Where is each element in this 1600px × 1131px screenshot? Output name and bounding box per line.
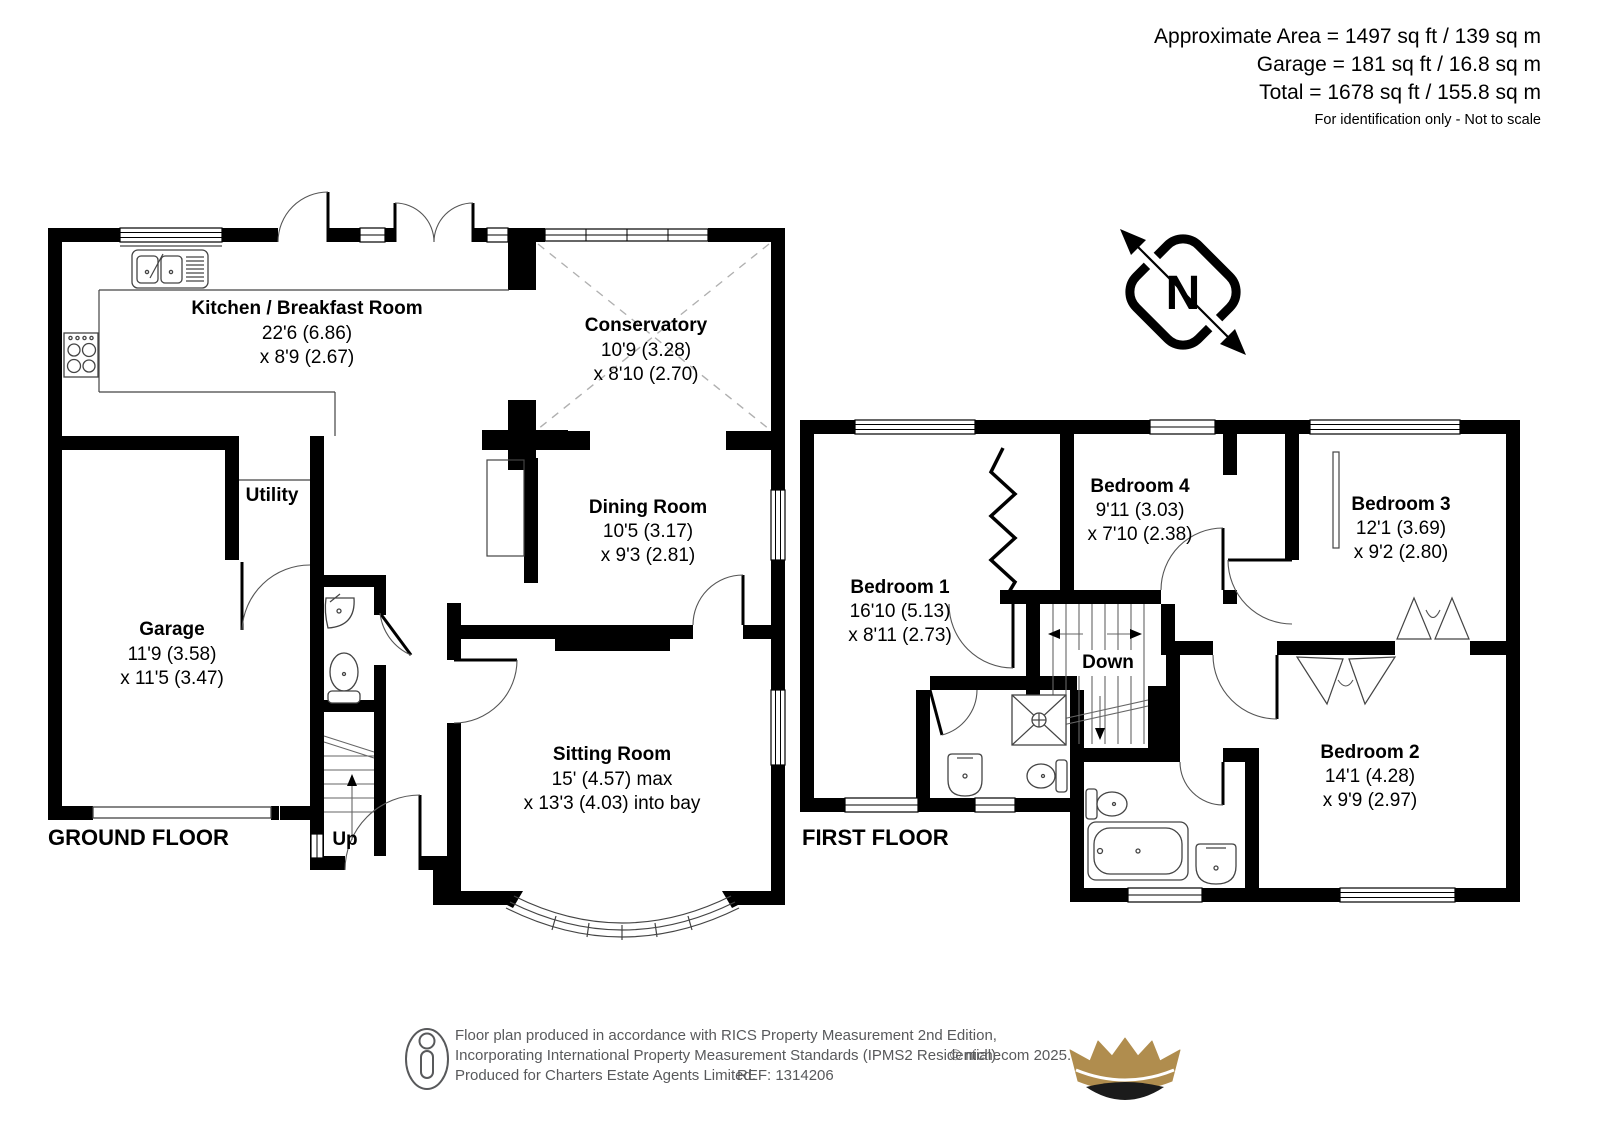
basin-icon bbox=[948, 754, 982, 796]
door bbox=[1180, 762, 1223, 805]
room-label-kitchen: Kitchen / Breakfast Room 22'6 (6.86) x 8… bbox=[191, 298, 422, 368]
door bbox=[278, 192, 328, 242]
door bbox=[380, 613, 411, 655]
french-doors bbox=[395, 203, 473, 242]
room-dim: x 9'3 (2.81) bbox=[601, 545, 695, 566]
window bbox=[120, 228, 222, 242]
room-label-bedroom4: Bedroom 4 9'11 (3.03) x 7'10 (2.38) bbox=[1087, 476, 1192, 545]
room-dim: 22'6 (6.86) bbox=[262, 323, 352, 344]
room-dim: x 13'3 (4.03) into bay bbox=[524, 793, 701, 814]
room-label-garage: Garage 11'9 (3.58) x 11'5 (3.47) bbox=[120, 619, 224, 689]
footer-line1: Floor plan produced in accordance with R… bbox=[455, 1027, 997, 1044]
room-name: Garage bbox=[139, 619, 204, 640]
door bbox=[242, 562, 310, 630]
window bbox=[1128, 888, 1202, 902]
room-name: Kitchen / Breakfast Room bbox=[191, 298, 422, 319]
corner-basin-icon bbox=[325, 594, 354, 628]
charters-crown-logo bbox=[1070, 1038, 1180, 1100]
door bbox=[1213, 655, 1277, 719]
wardrobe-doors-bedroom2 bbox=[1297, 657, 1395, 704]
approximate-area-text: Approximate Area = 1497 sq ft / 139 sq m bbox=[1154, 25, 1541, 48]
room-name: Conservatory bbox=[585, 315, 708, 336]
wardrobe-doors-bedroom3 bbox=[1397, 598, 1469, 639]
room-name: Dining Room bbox=[589, 497, 707, 518]
window bbox=[1340, 888, 1455, 902]
person-icon bbox=[406, 1029, 448, 1089]
conservatory-window-band bbox=[545, 229, 708, 241]
room-dim: x 9'9 (2.97) bbox=[1323, 790, 1417, 811]
room-dim: 9'11 (3.03) bbox=[1096, 500, 1185, 521]
room-dim: x 8'10 (2.70) bbox=[593, 364, 698, 385]
ground-floor-label: GROUND FLOOR bbox=[48, 825, 229, 850]
room-label-dining-room: Dining Room 10'5 (3.17) x 9'3 (2.81) bbox=[589, 497, 707, 566]
bay-window bbox=[497, 891, 748, 940]
footer-line2: Incorporating International Property Mea… bbox=[455, 1047, 1000, 1064]
room-label-bedroom3: Bedroom 3 12'1 (3.69) x 9'2 (2.80) bbox=[1351, 494, 1450, 563]
room-dim: 11'9 (3.58) bbox=[128, 644, 217, 665]
room-name: Bedroom 2 bbox=[1320, 742, 1419, 763]
garage-door bbox=[85, 806, 279, 820]
room-name: Bedroom 3 bbox=[1351, 494, 1450, 515]
window bbox=[855, 420, 975, 434]
window bbox=[771, 490, 785, 560]
room-dim: 10'5 (3.17) bbox=[603, 521, 693, 542]
hob-icon bbox=[64, 333, 98, 377]
door bbox=[1228, 560, 1292, 624]
room-label-conservatory: Conservatory 10'9 (3.28) x 8'10 (2.70) bbox=[585, 315, 708, 385]
footer-copyright: © nichecom 2025. bbox=[950, 1047, 1071, 1064]
door bbox=[693, 575, 743, 625]
room-label-sitting-room: Sitting Room 15' (4.57) max x 13'3 (4.03… bbox=[524, 744, 701, 814]
window bbox=[771, 690, 785, 765]
room-dim: x 8'9 (2.67) bbox=[260, 347, 354, 368]
room-name: Bedroom 4 bbox=[1090, 476, 1190, 497]
ground-floor-plan: Kitchen / Breakfast Room 22'6 (6.86) x 8… bbox=[48, 192, 785, 940]
window bbox=[845, 798, 918, 812]
not-to-scale-note: For identification only - Not to scale bbox=[1315, 112, 1541, 128]
window bbox=[360, 228, 385, 242]
room-name: Sitting Room bbox=[553, 744, 671, 765]
room-dim: 10'9 (3.28) bbox=[601, 340, 691, 361]
room-label-bedroom1: Bedroom 1 16'10 (5.13) x 8'11 (2.73) bbox=[848, 577, 952, 646]
room-dim: x 9'2 (2.80) bbox=[1354, 542, 1448, 563]
total-area-text: Total = 1678 sq ft / 155.8 sq m bbox=[1259, 81, 1541, 104]
footer-ref: REF: 1314206 bbox=[737, 1067, 834, 1084]
toilet-icon bbox=[1027, 760, 1067, 792]
room-name: Bedroom 1 bbox=[850, 577, 950, 598]
door bbox=[949, 604, 1013, 668]
garage-area-text: Garage = 181 sq ft / 16.8 sq m bbox=[1257, 53, 1541, 76]
room-name: Utility bbox=[246, 485, 299, 506]
floor-plan-canvas: Approximate Area = 1497 sq ft / 139 sq m… bbox=[0, 0, 1600, 1131]
window bbox=[311, 834, 323, 858]
room-dim: 14'1 (4.28) bbox=[1325, 766, 1415, 787]
floorplan-page: Approximate Area = 1497 sq ft / 139 sq m… bbox=[0, 0, 1600, 1131]
compass-n-label: N bbox=[1166, 267, 1201, 320]
room-dim: x 8'11 (2.73) bbox=[848, 625, 952, 646]
room-label-utility: Utility bbox=[246, 485, 299, 506]
basin-icon bbox=[1196, 844, 1236, 884]
window bbox=[1150, 420, 1215, 434]
room-label-bedroom2: Bedroom 2 14'1 (4.28) x 9'9 (2.97) bbox=[1320, 742, 1419, 811]
first-floor-plan: Bedroom 1 16'10 (5.13) x 8'11 (2.73) Bed… bbox=[800, 420, 1520, 902]
sink-icon bbox=[132, 250, 208, 288]
door bbox=[930, 690, 977, 735]
room-dim: x 11'5 (3.47) bbox=[120, 668, 224, 689]
area-summary: Approximate Area = 1497 sq ft / 139 sq m… bbox=[1154, 25, 1541, 128]
stairs-up-label: Up bbox=[332, 829, 357, 850]
room-dim: x 7'10 (2.38) bbox=[1087, 524, 1192, 545]
toilet-icon bbox=[1086, 789, 1127, 819]
toilet-icon bbox=[328, 653, 360, 703]
footer: Floor plan produced in accordance with R… bbox=[406, 1027, 1180, 1100]
conservatory-ceiling-lines bbox=[538, 244, 769, 429]
footer-line3: Produced for Charters Estate Agents Limi… bbox=[455, 1067, 756, 1084]
room-dim: 16'10 (5.13) bbox=[850, 601, 951, 622]
wardrobe-folding-doors bbox=[991, 448, 1015, 602]
room-dim: 12'1 (3.69) bbox=[1356, 518, 1446, 539]
stairs-up bbox=[324, 736, 374, 840]
dining-cupboard bbox=[487, 460, 524, 556]
bath-icon bbox=[1088, 822, 1188, 880]
stairs-down-label: Down bbox=[1082, 652, 1134, 673]
shower-icon bbox=[1012, 695, 1066, 745]
door bbox=[454, 660, 517, 723]
room-dim: 15' (4.57) max bbox=[552, 769, 673, 790]
cupboard-door-leaf bbox=[1333, 452, 1339, 548]
window bbox=[975, 798, 1015, 812]
window bbox=[487, 228, 508, 242]
first-floor-label: FIRST FLOOR bbox=[802, 825, 949, 850]
north-compass: N bbox=[1120, 229, 1246, 355]
window bbox=[1310, 420, 1460, 434]
